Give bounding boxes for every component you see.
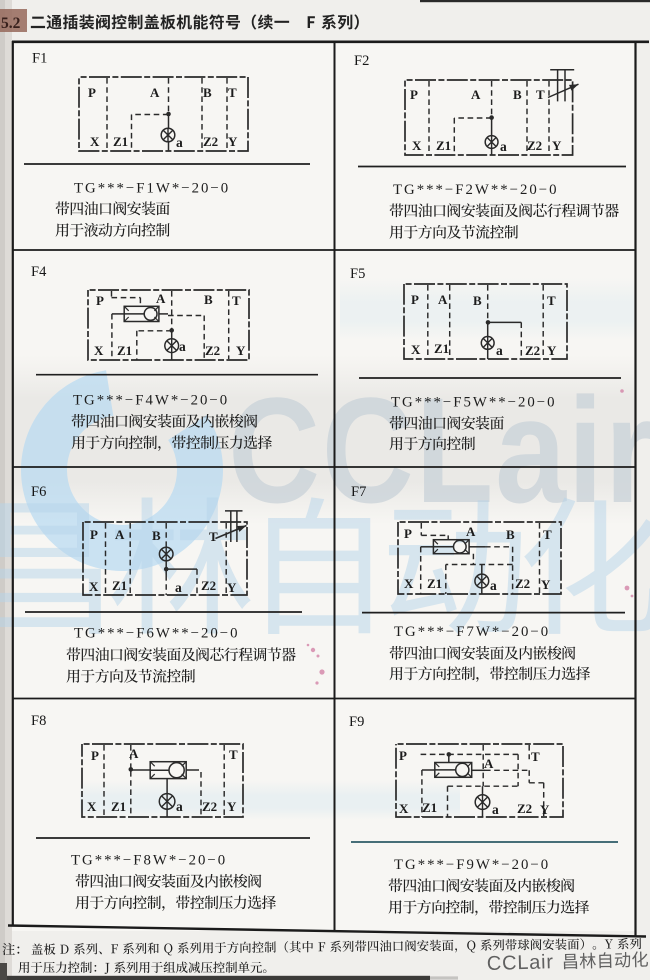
svg-text:CCLair: CCLair xyxy=(486,951,554,975)
svg-text:Y: Y xyxy=(228,134,238,149)
svg-text:Z1: Z1 xyxy=(111,799,126,814)
svg-text:P: P xyxy=(90,527,98,542)
svg-text:A: A xyxy=(129,746,139,761)
svg-text:a: a xyxy=(500,139,507,154)
svg-text:Z1: Z1 xyxy=(422,800,437,815)
svg-text:Y: Y xyxy=(227,580,237,595)
svg-text:F6: F6 xyxy=(31,484,46,500)
svg-text:B: B xyxy=(204,292,213,307)
svg-text:F5: F5 xyxy=(350,266,365,282)
svg-text:T: T xyxy=(228,85,237,100)
svg-text:A: A xyxy=(156,291,166,306)
svg-text:a: a xyxy=(176,799,183,814)
svg-text:a: a xyxy=(179,339,186,354)
svg-text:T: T xyxy=(536,87,545,102)
svg-text:TG***−F6W**−20−0: TG***−F6W**−20−0 xyxy=(74,626,240,642)
svg-text:T: T xyxy=(229,747,238,762)
svg-text:Y: Y xyxy=(227,799,237,814)
svg-text:A: A xyxy=(471,87,481,102)
svg-text:F2: F2 xyxy=(354,53,369,69)
svg-text:Z1: Z1 xyxy=(436,138,451,153)
svg-text:Z2: Z2 xyxy=(201,578,216,593)
svg-text:TG***−F8W*−20−0: TG***−F8W*−20−0 xyxy=(71,853,227,869)
svg-text:Z2: Z2 xyxy=(205,343,220,358)
svg-text:TG***−F1W*−20−0: TG***−F1W*−20−0 xyxy=(74,181,230,197)
svg-text:a: a xyxy=(492,802,499,817)
svg-text:P: P xyxy=(404,526,412,541)
svg-text:TG***−F2W**−20−0: TG***−F2W**−20−0 xyxy=(393,182,559,198)
svg-text:5.2: 5.2 xyxy=(1,15,21,32)
svg-text:Z1: Z1 xyxy=(113,134,128,149)
svg-text:B: B xyxy=(506,527,515,542)
svg-text:T: T xyxy=(232,293,241,308)
svg-text:B: B xyxy=(203,85,212,100)
svg-text:X: X xyxy=(94,343,104,358)
svg-text:T: T xyxy=(547,293,556,308)
svg-text:Y: Y xyxy=(552,138,562,153)
svg-text:B: B xyxy=(473,293,482,308)
svg-text:CCLair: CCLair xyxy=(228,367,650,534)
svg-text:B: B xyxy=(513,87,522,102)
svg-text:X: X xyxy=(411,342,421,357)
svg-text:B: B xyxy=(152,528,161,543)
svg-text:TG***−F7W*−20−0: TG***−F7W*−20−0 xyxy=(394,624,550,640)
svg-text:a: a xyxy=(176,135,183,150)
svg-text:A: A xyxy=(466,524,476,539)
svg-text:Y: Y xyxy=(547,343,557,358)
svg-text:F4: F4 xyxy=(31,264,47,280)
svg-text:Z2: Z2 xyxy=(203,134,218,149)
svg-text:P: P xyxy=(88,85,96,100)
svg-text:P: P xyxy=(399,748,407,763)
svg-text:F8: F8 xyxy=(31,713,46,729)
svg-text:P: P xyxy=(91,748,99,763)
svg-text:X: X xyxy=(404,576,414,591)
svg-text:A: A xyxy=(484,756,494,771)
svg-text:a: a xyxy=(496,343,503,358)
svg-text:T: T xyxy=(543,527,552,542)
svg-text:F9: F9 xyxy=(349,714,364,730)
svg-text:Z2: Z2 xyxy=(527,138,542,153)
svg-text:X: X xyxy=(90,134,100,149)
svg-text:X: X xyxy=(87,799,97,814)
svg-text:X: X xyxy=(89,579,99,594)
svg-text:Y: Y xyxy=(236,343,246,358)
svg-text:Z1: Z1 xyxy=(117,343,132,358)
svg-text:A: A xyxy=(115,527,125,542)
svg-text:a: a xyxy=(175,580,182,595)
svg-text:P: P xyxy=(96,293,104,308)
svg-text:X: X xyxy=(412,138,422,153)
svg-text:TG***−F5W**−20−0: TG***−F5W**−20−0 xyxy=(391,395,557,411)
svg-text:X: X xyxy=(399,801,409,816)
svg-text:A: A xyxy=(150,85,160,100)
svg-text:Z2: Z2 xyxy=(202,799,217,814)
svg-text:Y: Y xyxy=(541,577,551,592)
svg-text:F1: F1 xyxy=(32,51,47,67)
svg-text:P: P xyxy=(411,292,419,307)
svg-text:Z1: Z1 xyxy=(112,578,127,593)
svg-text:T: T xyxy=(209,529,218,544)
svg-text:a: a xyxy=(490,578,497,593)
svg-text:T: T xyxy=(531,749,540,764)
svg-text:Z2: Z2 xyxy=(517,801,532,816)
svg-text:F7: F7 xyxy=(351,484,366,500)
svg-text:Y: Y xyxy=(540,802,550,817)
svg-text:Z2: Z2 xyxy=(515,576,530,591)
svg-text:Z1: Z1 xyxy=(434,341,449,356)
svg-text:P: P xyxy=(410,87,418,102)
svg-text:A: A xyxy=(438,292,448,307)
svg-text:Z2: Z2 xyxy=(525,343,540,358)
svg-text:Z1: Z1 xyxy=(427,576,442,591)
svg-text:TG***−F9W*−20−0: TG***−F9W*−20−0 xyxy=(394,857,550,873)
svg-text:TG***−F4W*−20−0: TG***−F4W*−20−0 xyxy=(73,393,229,409)
